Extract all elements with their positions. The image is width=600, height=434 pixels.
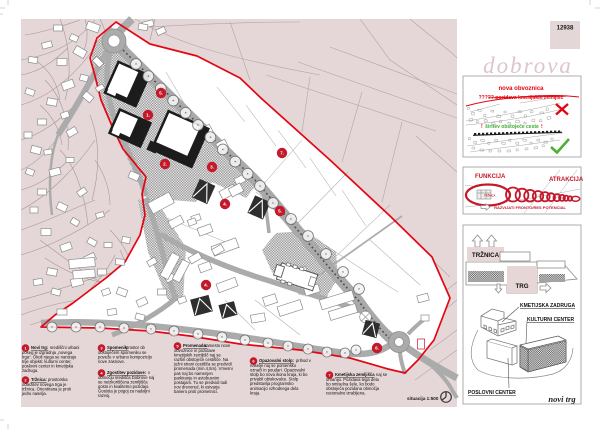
svg-text:prihod v: prihod v bbox=[296, 358, 312, 363]
svg-text:nova obvoznica: nova obvoznica bbox=[498, 86, 544, 92]
svg-text:novi trg: novi trg bbox=[548, 394, 576, 404]
svg-text:5.: 5. bbox=[278, 209, 282, 214]
svg-text:KMETIJSKA ZADRUGA: KMETIJSKA ZADRUGA bbox=[520, 303, 575, 309]
svg-text:5.: 5. bbox=[159, 91, 163, 96]
svg-text:2.: 2. bbox=[163, 162, 167, 167]
svg-text:TRG: TRG bbox=[515, 283, 528, 290]
svg-text:TRŽNICA: TRŽNICA bbox=[472, 251, 500, 259]
svg-text:7.: 7. bbox=[280, 151, 284, 156]
svg-text:širitev obstoječe ceste: širitev obstoječe ceste bbox=[485, 124, 539, 130]
svg-text:FUNKCIJA: FUNKCIJA bbox=[475, 174, 506, 180]
svg-text:3.: 3. bbox=[210, 165, 214, 170]
svg-text:dobrova: dobrova bbox=[483, 53, 573, 78]
svg-text:bariero proti prometnici.: bariero proti prometnici. bbox=[174, 389, 218, 394]
svg-text:ATRAKCIJA: ATRAKCIJA bbox=[549, 177, 584, 183]
svg-text:KULTURNI CENTER: KULTURNI CENTER bbox=[527, 317, 575, 323]
svg-text:4.: 4. bbox=[204, 283, 208, 288]
svg-text:situacija 1:500: situacija 1:500 bbox=[407, 396, 439, 401]
svg-text:racionalno izrabljena.: racionalno izrabljena. bbox=[326, 391, 366, 396]
svg-text:razvoj.: razvoj. bbox=[98, 393, 110, 398]
svg-text:kraja.: kraja. bbox=[250, 390, 260, 395]
svg-text:POSLOVNI CENTER: POSLOVNI CENTER bbox=[468, 390, 516, 396]
svg-text:jedru naselja.: jedru naselja. bbox=[21, 391, 47, 396]
svg-text:nove zasnove.: nove zasnove. bbox=[98, 359, 125, 364]
svg-text:zadruga.: zadruga. bbox=[22, 368, 38, 373]
svg-text:RAZVIJATI FRONTO/RES POTENCIAL: RAZVIJATI FRONTO/RES POTENCIAL bbox=[494, 205, 566, 210]
svg-text:1.: 1. bbox=[146, 113, 150, 118]
svg-text:4.: 4. bbox=[223, 202, 227, 207]
svg-text:12938: 12938 bbox=[557, 26, 574, 32]
svg-text:6.: 6. bbox=[375, 346, 379, 351]
